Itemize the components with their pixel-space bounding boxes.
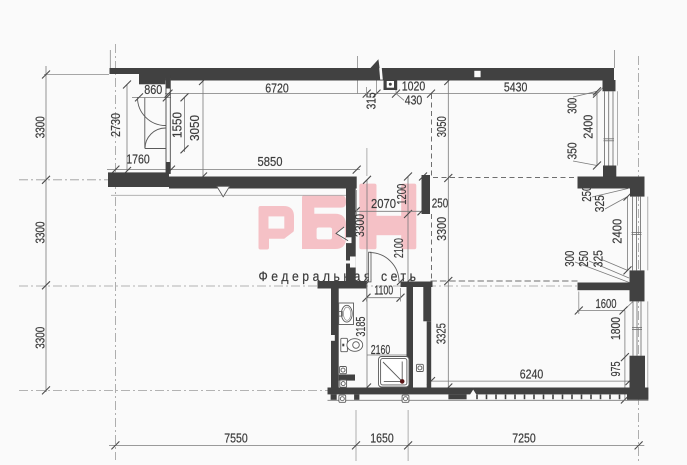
svg-text:7550: 7550 bbox=[224, 431, 248, 446]
svg-text:315: 315 bbox=[364, 92, 379, 109]
svg-text:3325: 3325 bbox=[433, 323, 448, 344]
svg-text:2730: 2730 bbox=[108, 113, 123, 137]
svg-text:1020: 1020 bbox=[402, 78, 426, 93]
svg-text:250: 250 bbox=[576, 251, 591, 267]
svg-text:325: 325 bbox=[592, 195, 607, 212]
svg-text:250: 250 bbox=[432, 195, 449, 210]
svg-text:2100: 2100 bbox=[391, 238, 406, 258]
svg-text:6720: 6720 bbox=[265, 80, 289, 95]
svg-text:300: 300 bbox=[562, 251, 577, 267]
svg-text:3300: 3300 bbox=[32, 116, 47, 138]
svg-text:2400: 2400 bbox=[580, 115, 595, 139]
svg-text:3300: 3300 bbox=[32, 222, 47, 244]
svg-text:1650: 1650 bbox=[370, 431, 394, 446]
svg-text:300: 300 bbox=[564, 98, 579, 114]
svg-text:1200: 1200 bbox=[394, 184, 409, 205]
svg-text:325: 325 bbox=[591, 250, 606, 267]
svg-text:3050: 3050 bbox=[187, 115, 202, 141]
svg-text:6240: 6240 bbox=[520, 367, 544, 382]
svg-text:975: 975 bbox=[608, 362, 623, 377]
svg-text:430: 430 bbox=[405, 93, 423, 108]
svg-text:1100: 1100 bbox=[374, 283, 393, 298]
svg-text:3050: 3050 bbox=[434, 116, 449, 137]
svg-text:1760: 1760 bbox=[126, 152, 150, 167]
svg-text:2160: 2160 bbox=[371, 342, 391, 357]
svg-text:3300: 3300 bbox=[32, 327, 47, 349]
svg-text:7250: 7250 bbox=[512, 431, 536, 446]
svg-text:1800: 1800 bbox=[608, 317, 623, 340]
svg-text:1550: 1550 bbox=[169, 112, 184, 138]
svg-text:5850: 5850 bbox=[258, 154, 283, 169]
svg-text:350: 350 bbox=[564, 143, 579, 160]
svg-text:1600: 1600 bbox=[596, 296, 617, 311]
svg-text:2400: 2400 bbox=[610, 219, 625, 244]
svg-text:3300: 3300 bbox=[434, 217, 449, 241]
svg-text:3185: 3185 bbox=[353, 317, 368, 337]
svg-text:2070: 2070 bbox=[371, 196, 396, 211]
svg-text:5430: 5430 bbox=[504, 80, 528, 95]
